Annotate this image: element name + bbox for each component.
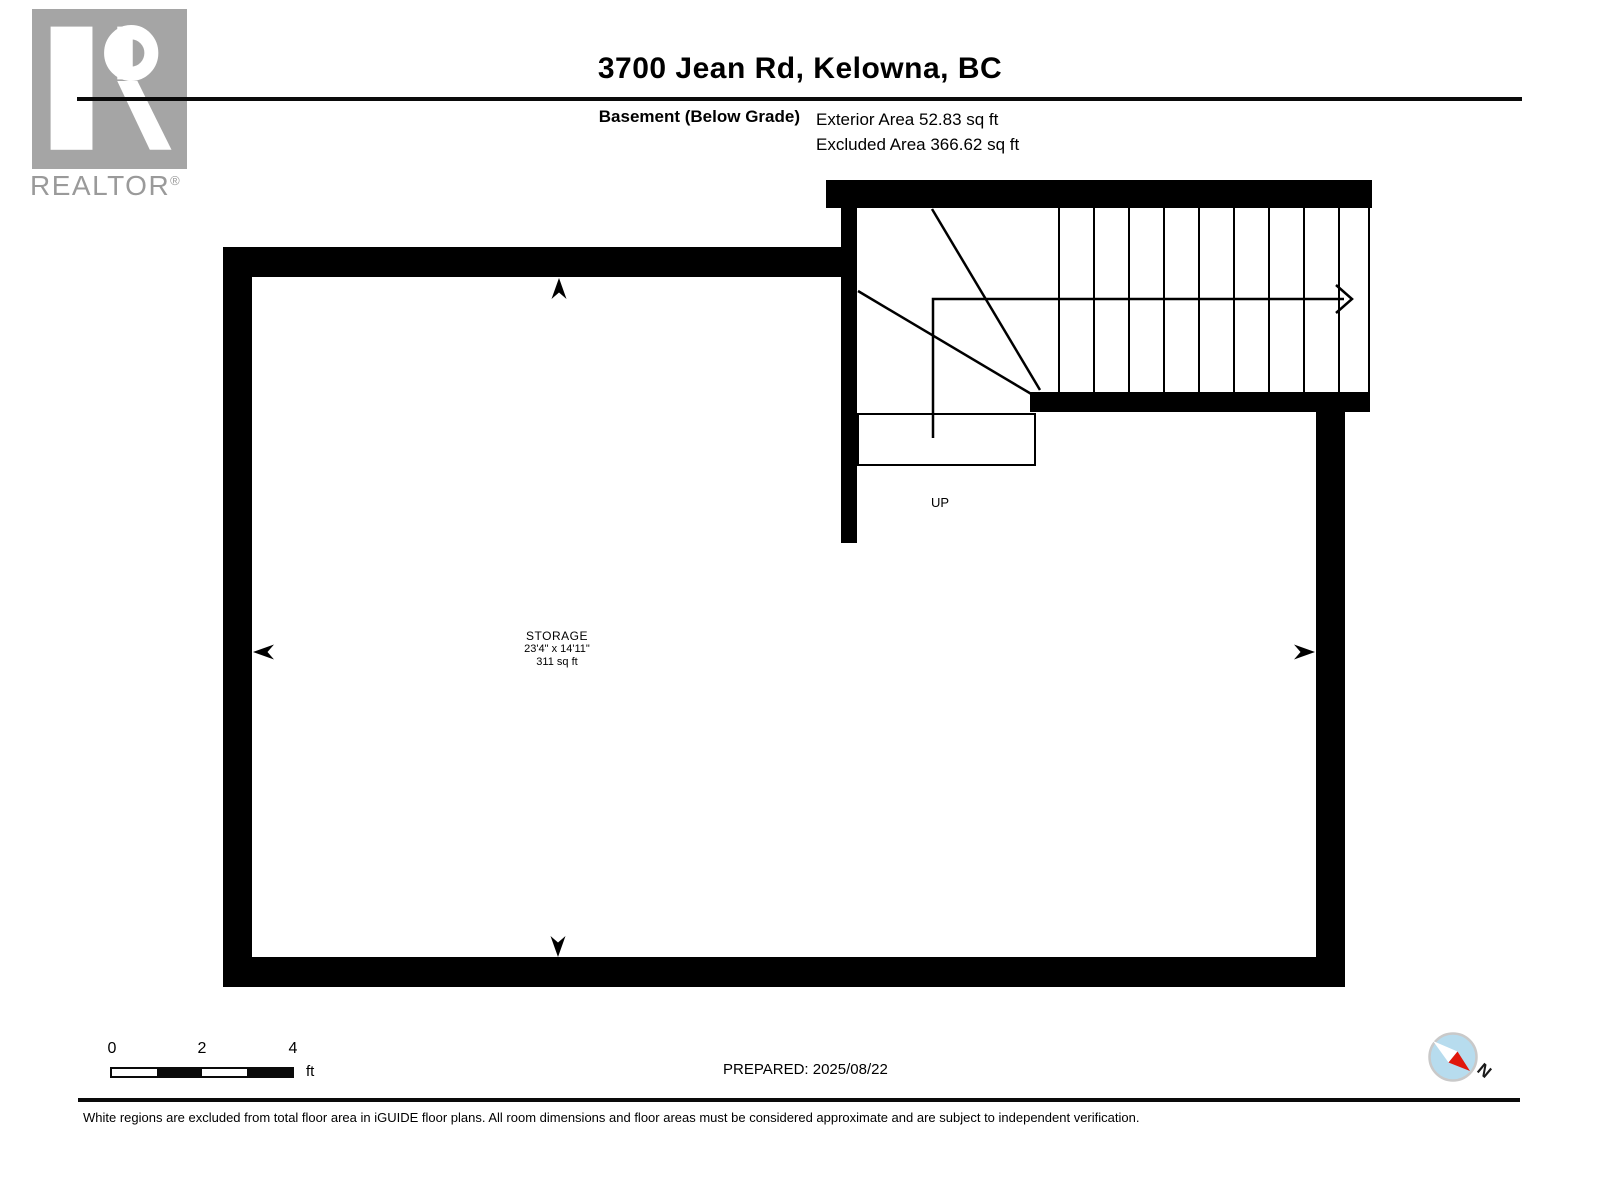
room-name: STORAGE	[457, 630, 657, 643]
stair-direction-line	[933, 299, 1344, 438]
dimension-arrow-left-icon	[253, 645, 274, 660]
room-left-wall	[223, 247, 252, 987]
room-bottom-wall	[223, 957, 1345, 987]
winder-line-2	[858, 291, 1033, 395]
stair-landing	[858, 414, 1035, 465]
scale-segment-black	[157, 1069, 202, 1076]
dimension-arrow-down-icon	[551, 936, 566, 957]
scale-tick-0: 0	[108, 1040, 117, 1058]
scale-segment-white	[112, 1069, 157, 1076]
room-dimensions: 23'4" x 14'11"	[457, 643, 657, 656]
scale-segment-black	[247, 1069, 292, 1076]
footer-divider-line	[78, 1098, 1520, 1102]
floor-plan-drawing: N	[0, 0, 1600, 1200]
floorplan-page: REALTOR® 3700 Jean Rd, Kelowna, BC Basem…	[0, 0, 1600, 1200]
room-label: STORAGE 23'4" x 14'11" 311 sq ft	[457, 630, 657, 669]
scale-tick-4: 4	[289, 1040, 298, 1058]
prepared-date: PREPARED: 2025/08/22	[723, 1061, 888, 1078]
stair-top-wall	[826, 180, 1372, 208]
scale-bar: 0 2 4 ft	[100, 1040, 360, 1090]
scale-unit-label: ft	[306, 1063, 314, 1080]
scale-bar-segments	[110, 1067, 294, 1078]
stair-bottom-wall	[1030, 392, 1370, 412]
stairs-up-label: UP	[910, 495, 970, 510]
room-area: 311 sq ft	[457, 656, 657, 669]
scale-segment-white	[202, 1069, 247, 1076]
room-right-wall	[1316, 398, 1345, 957]
scale-tick-2: 2	[198, 1040, 207, 1058]
room-top-wall	[223, 247, 857, 277]
dimension-arrow-right-icon	[1294, 645, 1315, 660]
staircase	[858, 208, 1369, 465]
compass-icon: N	[1430, 1034, 1496, 1082]
disclaimer-text: White regions are excluded from total fl…	[83, 1110, 1139, 1125]
dimension-arrows	[253, 278, 1315, 957]
dimension-arrow-up-icon	[552, 278, 567, 299]
